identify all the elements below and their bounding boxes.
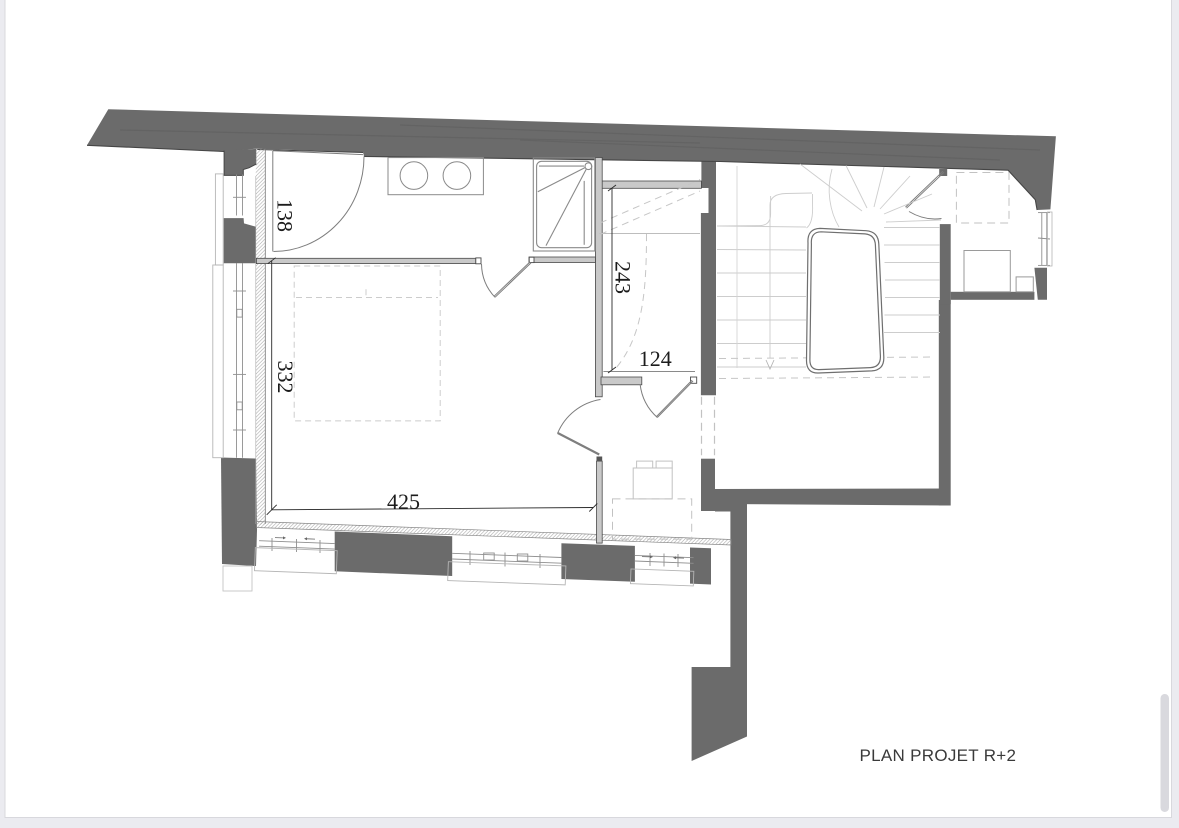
- svg-text:138: 138: [273, 199, 298, 232]
- svg-text:124: 124: [639, 346, 672, 371]
- svg-text:PLAN PROJET R+2: PLAN PROJET R+2: [860, 746, 1017, 765]
- svg-text:425: 425: [387, 489, 420, 514]
- svg-text:332: 332: [273, 361, 298, 394]
- svg-text:243: 243: [611, 261, 636, 294]
